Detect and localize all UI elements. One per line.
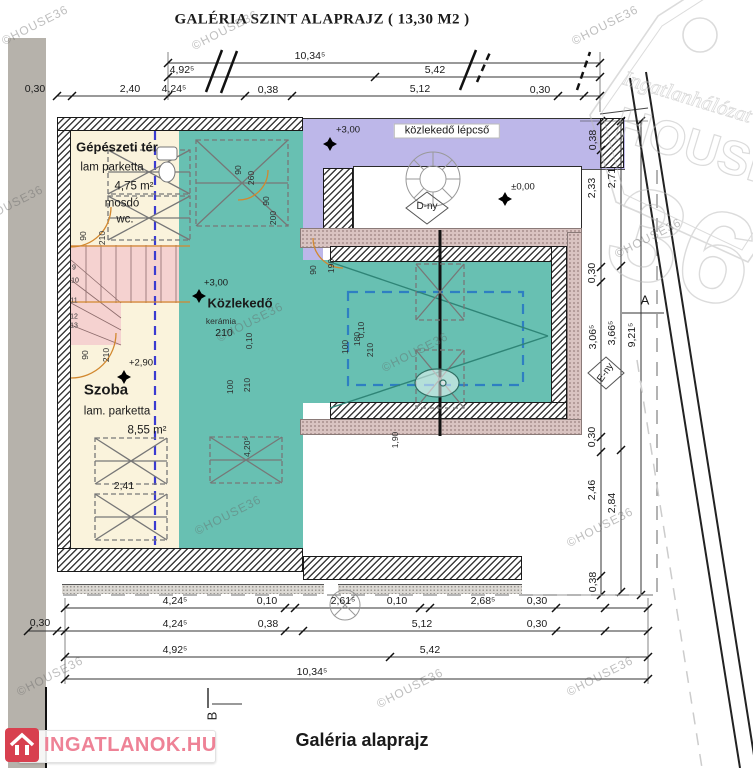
watermark: ©HOUSE36 <box>0 182 46 228</box>
dim-door: 4,20⁵ <box>243 437 252 457</box>
room-subtext: 8,55 m² <box>128 425 167 437</box>
dim-bottom: 4,24⁵ <box>163 596 188 607</box>
footer-title: Galéria alaprajz <box>295 731 428 749</box>
stair-corridor-label: közlekedő lépcső <box>394 124 500 139</box>
watermark: ©HOUSE36 <box>569 2 640 48</box>
dim-door: 190 <box>327 259 336 273</box>
stair-step-number: 10 <box>71 278 79 285</box>
dim-top: 0,30 <box>25 84 45 95</box>
dim-right: 3,06⁵ <box>588 325 599 350</box>
dim-inline: 2,41 <box>114 481 134 492</box>
house-icon <box>5 728 39 762</box>
dim-door: 210 <box>98 231 107 245</box>
room-subtext: lam parketta <box>80 162 143 174</box>
dim-door: 90 <box>234 165 243 174</box>
dim-door: 90 <box>262 196 271 205</box>
dim-top: 0,38 <box>258 85 278 96</box>
dim-right: 3,66⁵ <box>607 321 618 346</box>
dim-bottom: 0,38 <box>258 619 278 630</box>
dim-top: 2,40 <box>120 84 140 95</box>
orientation-mark: E-ny <box>596 362 616 385</box>
dim-top: 5,12 <box>410 84 430 95</box>
dim-bottom: 5,42 <box>420 645 440 656</box>
dim-top: 4,92⁵ <box>170 65 195 76</box>
dim-right: 0,30 <box>587 427 598 447</box>
dim-bottom: 0,30 <box>30 618 50 629</box>
dim-right: 0,38 <box>588 572 599 592</box>
stair-step-number: 11 <box>70 298 77 305</box>
dim-door: 260 <box>247 171 256 185</box>
room-label: Gépészeti tér <box>76 141 158 154</box>
section-mark: B <box>206 712 219 721</box>
dim-right: 2,71 <box>607 168 618 188</box>
dim-bottom: 0,10 <box>257 596 277 607</box>
dim-door: 90 <box>81 350 90 359</box>
dim-bottom: 4,24⁵ <box>163 619 188 630</box>
watermark: ©HOUSE36 <box>612 215 683 261</box>
watermark: ©HOUSE36 <box>564 653 635 699</box>
level-mark: +3,00 <box>204 278 228 288</box>
dim-door: 210 <box>366 343 375 357</box>
stair-step-number: 9 <box>72 265 76 272</box>
dim-right: 2,46 <box>587 480 598 500</box>
dim-door: 0,10 <box>245 333 254 350</box>
dim-top: 0,30 <box>530 85 550 96</box>
level-mark: +3,00 <box>336 125 360 135</box>
watermark: ©HOUSE36 <box>192 492 263 538</box>
dim-top: 4,24⁵ <box>162 84 187 95</box>
dim-door: 90 <box>309 265 318 274</box>
dim-door: 100 <box>341 340 350 354</box>
dim-door: 200 <box>269 211 278 225</box>
ingatlanok-logo[interactable]: INGATLANOK.HU <box>2 727 216 765</box>
dim-bottom: 4,92⁵ <box>163 645 188 656</box>
dim-right: 9,21⁵ <box>627 323 638 348</box>
dim-door: 90 <box>79 231 88 240</box>
labels-layer: GALÉRIA SZINT ALAPRAJZ ( 13,30 M2 )Galér… <box>0 0 753 768</box>
watermark: ©HOUSE36 <box>564 504 635 550</box>
dim-bottom: 5,12 <box>412 619 432 630</box>
dim-bottom: 2,61⁵ <box>331 596 356 607</box>
stair-step-number: 13 <box>70 323 78 330</box>
dim-door: 100 <box>226 380 235 394</box>
dim-door: 1,90 <box>391 432 400 449</box>
dim-door: 210 <box>243 378 252 392</box>
stair-step-number: 12 <box>70 314 78 321</box>
dim-top: 5,42 <box>425 65 445 76</box>
room-subtext: wc. <box>116 214 133 226</box>
level-mark: ±0,00 <box>511 182 535 192</box>
section-mark: A <box>641 294 650 307</box>
room-subtext: mosdó <box>105 198 140 210</box>
orientation-mark: D-ny <box>416 202 437 212</box>
watermark: ©HOUSE36 <box>379 329 450 375</box>
dim-bottom: 0,10 <box>387 596 407 607</box>
dim-door: 180 <box>353 332 362 346</box>
dim-right: 2,33 <box>587 178 598 198</box>
dim-door: 210 <box>102 348 111 362</box>
watermark: ©HOUSE36 <box>0 2 71 48</box>
room-label-large: Szoba <box>84 383 128 398</box>
level-mark: +2,90 <box>129 358 153 368</box>
room-subtext: lam. parketta <box>84 406 150 418</box>
watermark: ©HOUSE36 <box>374 665 445 711</box>
watermark: ©HOUSE36 <box>14 653 85 699</box>
dim-bottom: 0,30 <box>527 619 547 630</box>
floorplan-canvas: Ingatlanhálózat HOUSE 36 GALÉRIA SZINT A… <box>0 0 753 768</box>
ingatlanok-logo-text: INGATLANOK.HU <box>44 734 217 757</box>
dim-top: 10,34⁵ <box>295 51 326 62</box>
dim-right: 0,30 <box>587 263 598 283</box>
dim-right: 0,38 <box>588 130 599 150</box>
dim-bottom: 0,30 <box>527 596 547 607</box>
room-subtext: 4,75 m² <box>115 181 154 193</box>
dim-bottom: 2,68⁵ <box>471 596 496 607</box>
dim-bottom: 10,34⁵ <box>297 667 328 678</box>
